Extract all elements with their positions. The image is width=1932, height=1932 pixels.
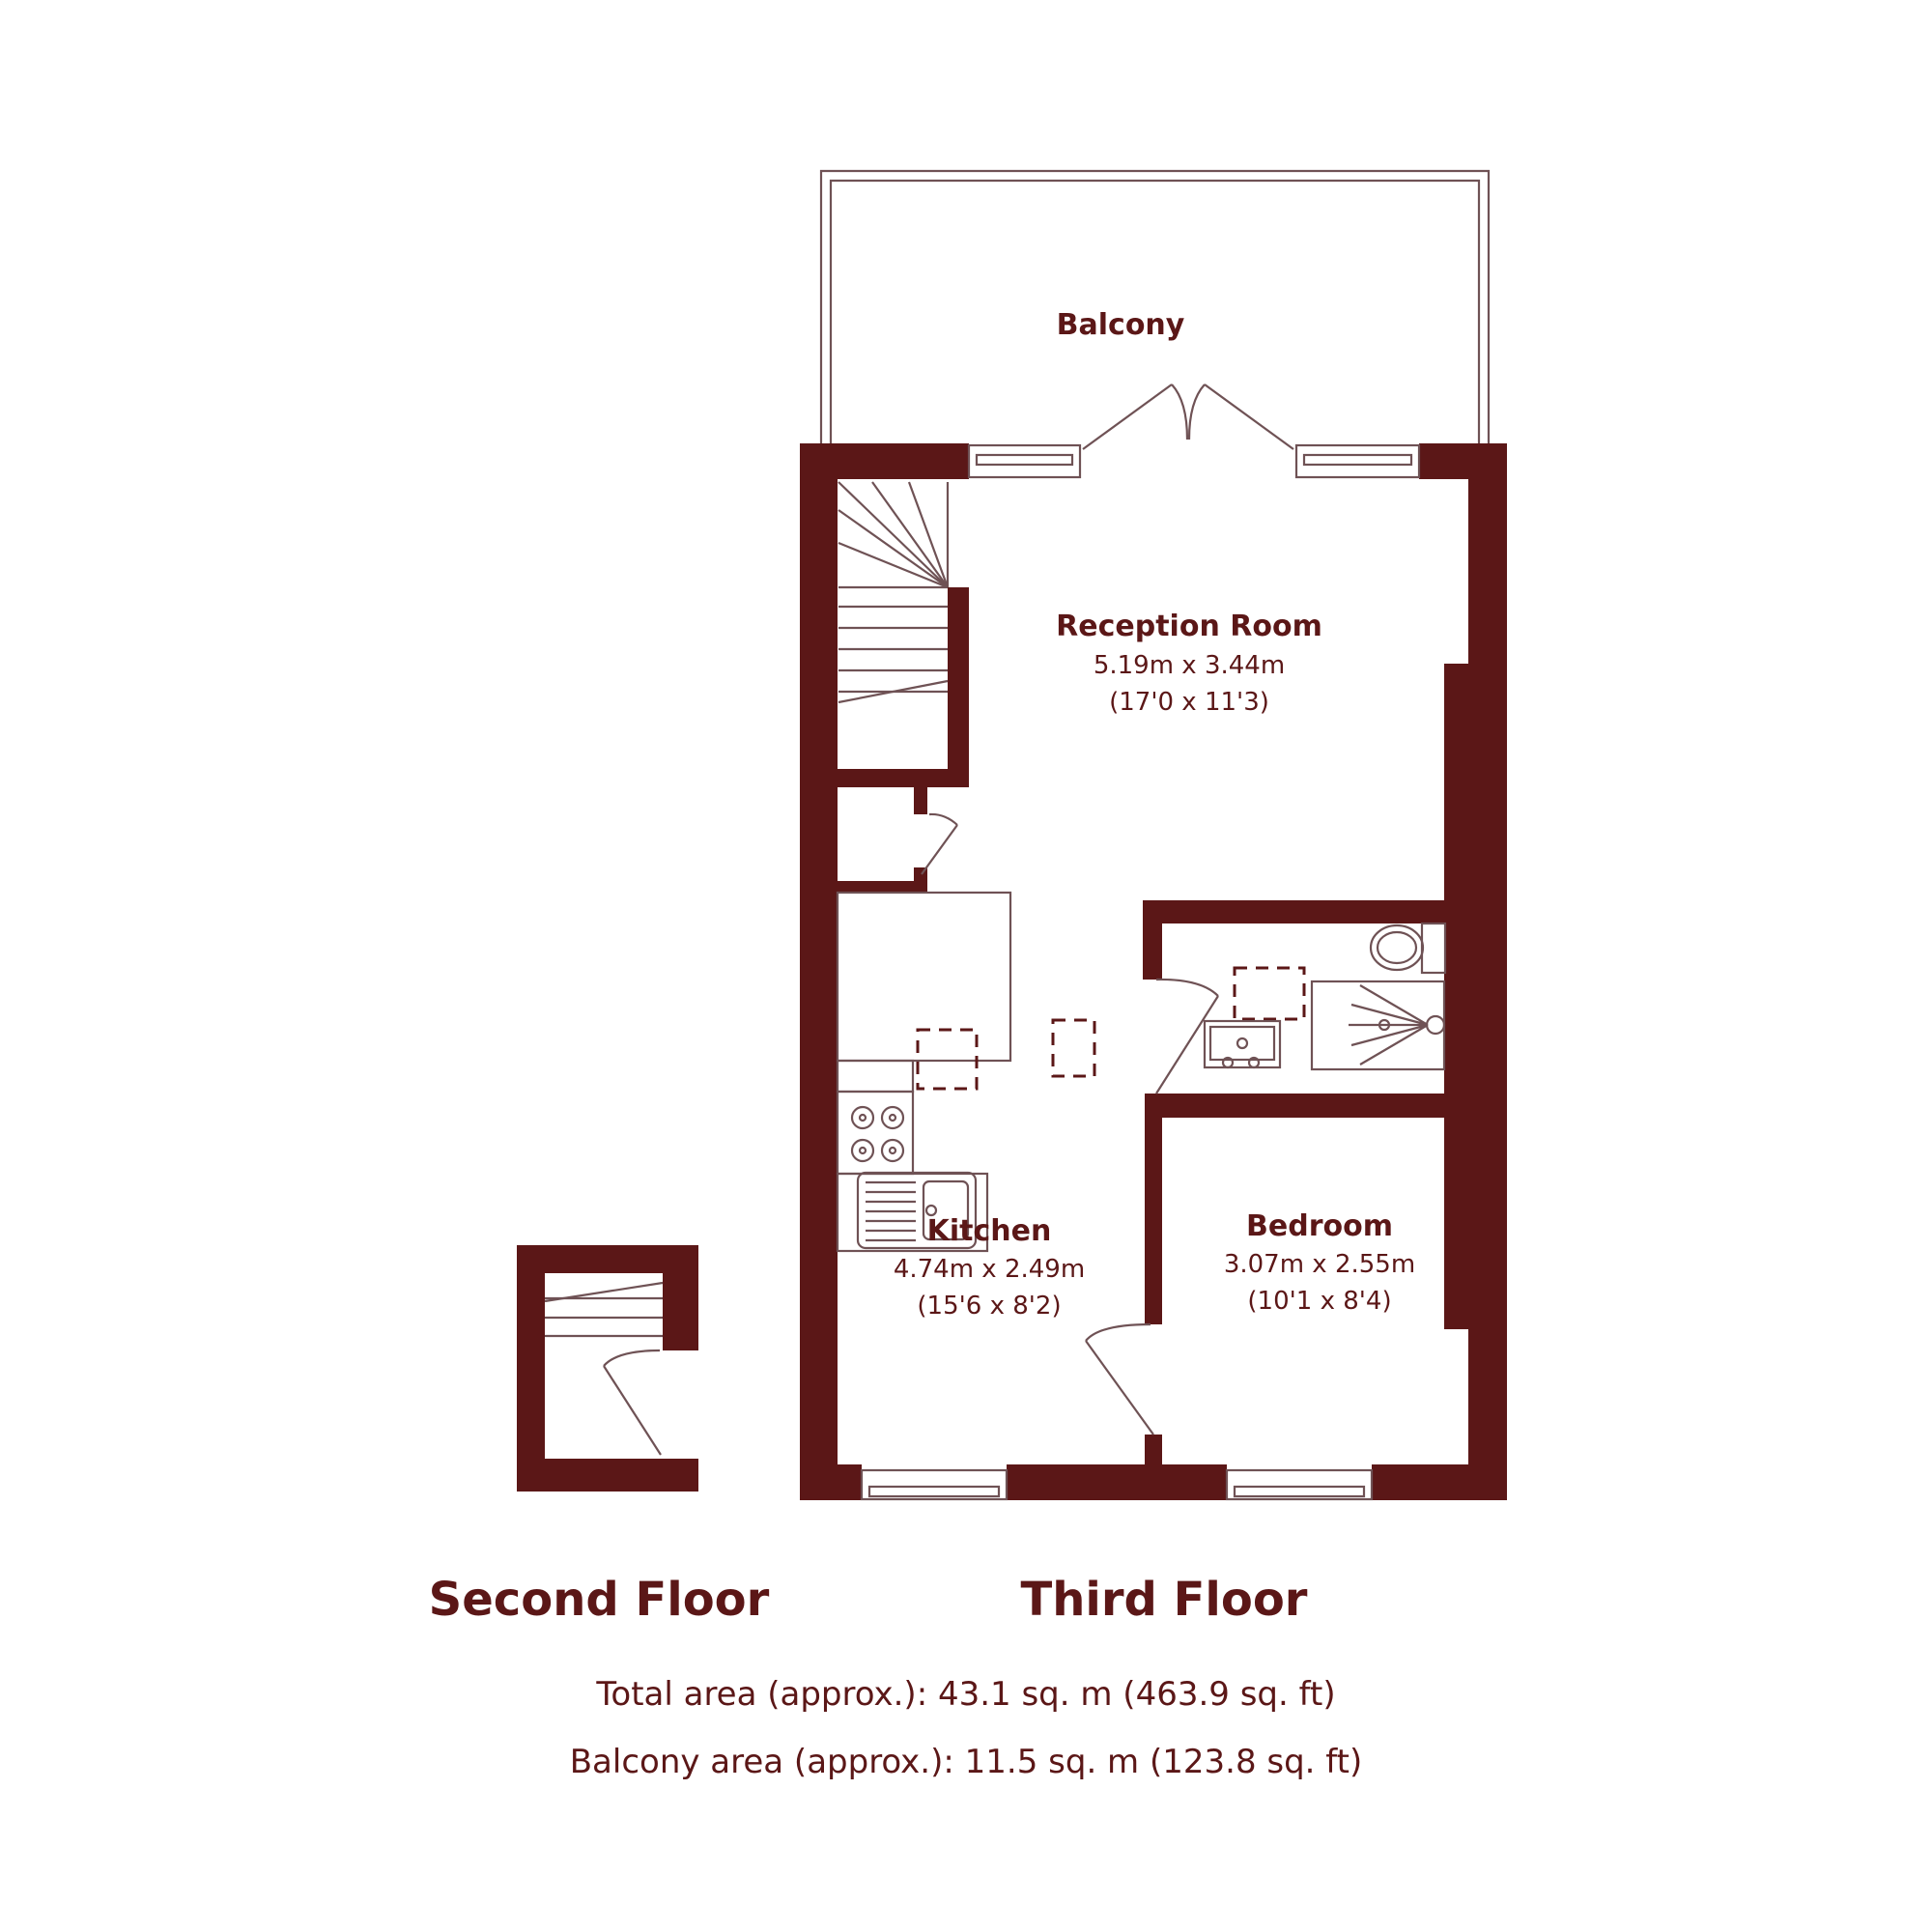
hall-door-shape [929,814,957,825]
toilet-shape [1378,932,1416,963]
door-stub [1143,923,1162,980]
appliance-space-dashed [1235,968,1304,1019]
staircase-third-floor-shape [838,482,948,587]
second-floor-door-shape [604,1350,660,1366]
window-shape [1296,445,1419,477]
wall-segment [800,443,838,1500]
third-floor-walls [800,443,1507,1500]
wall-segment [1007,1464,1227,1500]
staircase-second-floor [545,1283,663,1336]
balcony-area-label: Balcony area (approx.): 11.5 sq. m (123.… [570,1743,1363,1781]
appliance-space-dashed-shape [918,1030,977,1089]
door-stub [914,867,927,893]
washbasin [1205,1021,1280,1067]
bedroom-door-shape [1086,1341,1153,1435]
stair-wall [948,587,969,787]
second-floor-walls [517,1245,698,1492]
bathroom-top-wall [1143,900,1507,923]
floorplan-canvas: Balcony Reception Room 5.19m x 3.44m (17… [0,0,1932,1932]
bathroom-door [1156,980,1218,1094]
wall-segment [663,1245,698,1350]
bathroom-door-shape [1156,996,1218,1094]
wall-segment [838,769,969,787]
window-shape [969,445,1080,477]
toilet [1371,923,1445,973]
second-floor-label: Second Floor [429,1573,770,1627]
kitchen-counter-shape [838,1061,913,1092]
hob-shape [838,1092,913,1174]
hob-shape [882,1140,903,1161]
appliance-space-dashed [918,1020,1094,1089]
bedroom-label: Bedroom [1246,1209,1393,1243]
wall-segment [517,1245,545,1492]
hall-door-shape [922,825,957,874]
kitchen-sink-shape [866,1182,916,1240]
toilet-shape [1422,923,1445,973]
second-floor-door [604,1350,661,1455]
door-stub [1145,1435,1162,1464]
wall-segment [517,1459,698,1492]
bedroom-door [1086,1324,1153,1435]
hob-shape [860,1115,866,1121]
wall-segment [1468,1329,1507,1500]
second-floor-door-shape [604,1366,661,1455]
appliance-space-dashed-shape [1235,968,1304,1019]
third-floor-label: Third Floor [1021,1573,1308,1627]
hob-shape [852,1140,873,1161]
window [1227,1470,1372,1499]
wall-segment [1444,664,1507,1329]
total-area-label: Total area (approx.): 43.1 sq. m (463.9 … [595,1675,1335,1714]
balcony-outline [821,171,1489,443]
reception-room-label: Reception Room [1056,610,1322,643]
kitchen-counter [838,893,1010,1092]
staircase-third-floor [838,482,948,702]
shower-shape [1427,1016,1444,1034]
hob-shape [882,1107,903,1128]
reception-room-dim-imperial: (17'0 x 11'3) [1109,688,1269,717]
wall-segment [1468,443,1507,664]
hob-shape [852,1107,873,1128]
balcony-label: Balcony [1057,308,1185,342]
bathroom-bottom-wall [1162,1094,1507,1118]
bedroom-door-shape [1086,1324,1151,1341]
kitchen-bedroom-divider [1145,1094,1162,1324]
bedroom-dim-imperial: (10'1 x 8'4) [1247,1287,1391,1316]
staircase-third-floor-shape [909,482,948,587]
floorplan-drawing: Balcony Reception Room 5.19m x 3.44m (17… [0,0,1932,1932]
door-stub [914,787,927,814]
bathroom-door-shape [1156,980,1218,996]
hall-door [922,814,957,874]
french-doors-shape [1172,384,1187,440]
french-doors-shape [1205,384,1293,449]
french-doors [1083,384,1293,449]
window-shape [1227,1470,1372,1499]
washbasin-shape [1237,1038,1247,1048]
kitchen-dim-imperial: (15'6 x 8'2) [917,1292,1061,1321]
window-shape [862,1470,1007,1499]
hob-shape [890,1115,895,1121]
french-doors-shape [1189,384,1205,440]
appliance-space-dashed-shape [1053,1020,1094,1076]
washbasin-shape [1210,1027,1274,1060]
wall-segment [800,1464,862,1500]
window [862,1470,1007,1499]
balcony-outline-shape [821,171,1489,443]
shower [1312,981,1444,1069]
bedroom-dim-metric: 3.07m x 2.55m [1224,1250,1415,1279]
window [969,445,1080,477]
reception-room-dim-metric: 5.19m x 3.44m [1094,651,1285,680]
window [1296,445,1419,477]
hob-shape [860,1148,866,1153]
french-doors-shape [1083,384,1172,449]
hob [838,1092,913,1174]
kitchen-label: Kitchen [927,1214,1052,1248]
hob-shape [890,1148,895,1153]
kitchen-dim-metric: 4.74m x 2.49m [894,1255,1085,1284]
kitchen-counter-shape [838,893,1010,1061]
